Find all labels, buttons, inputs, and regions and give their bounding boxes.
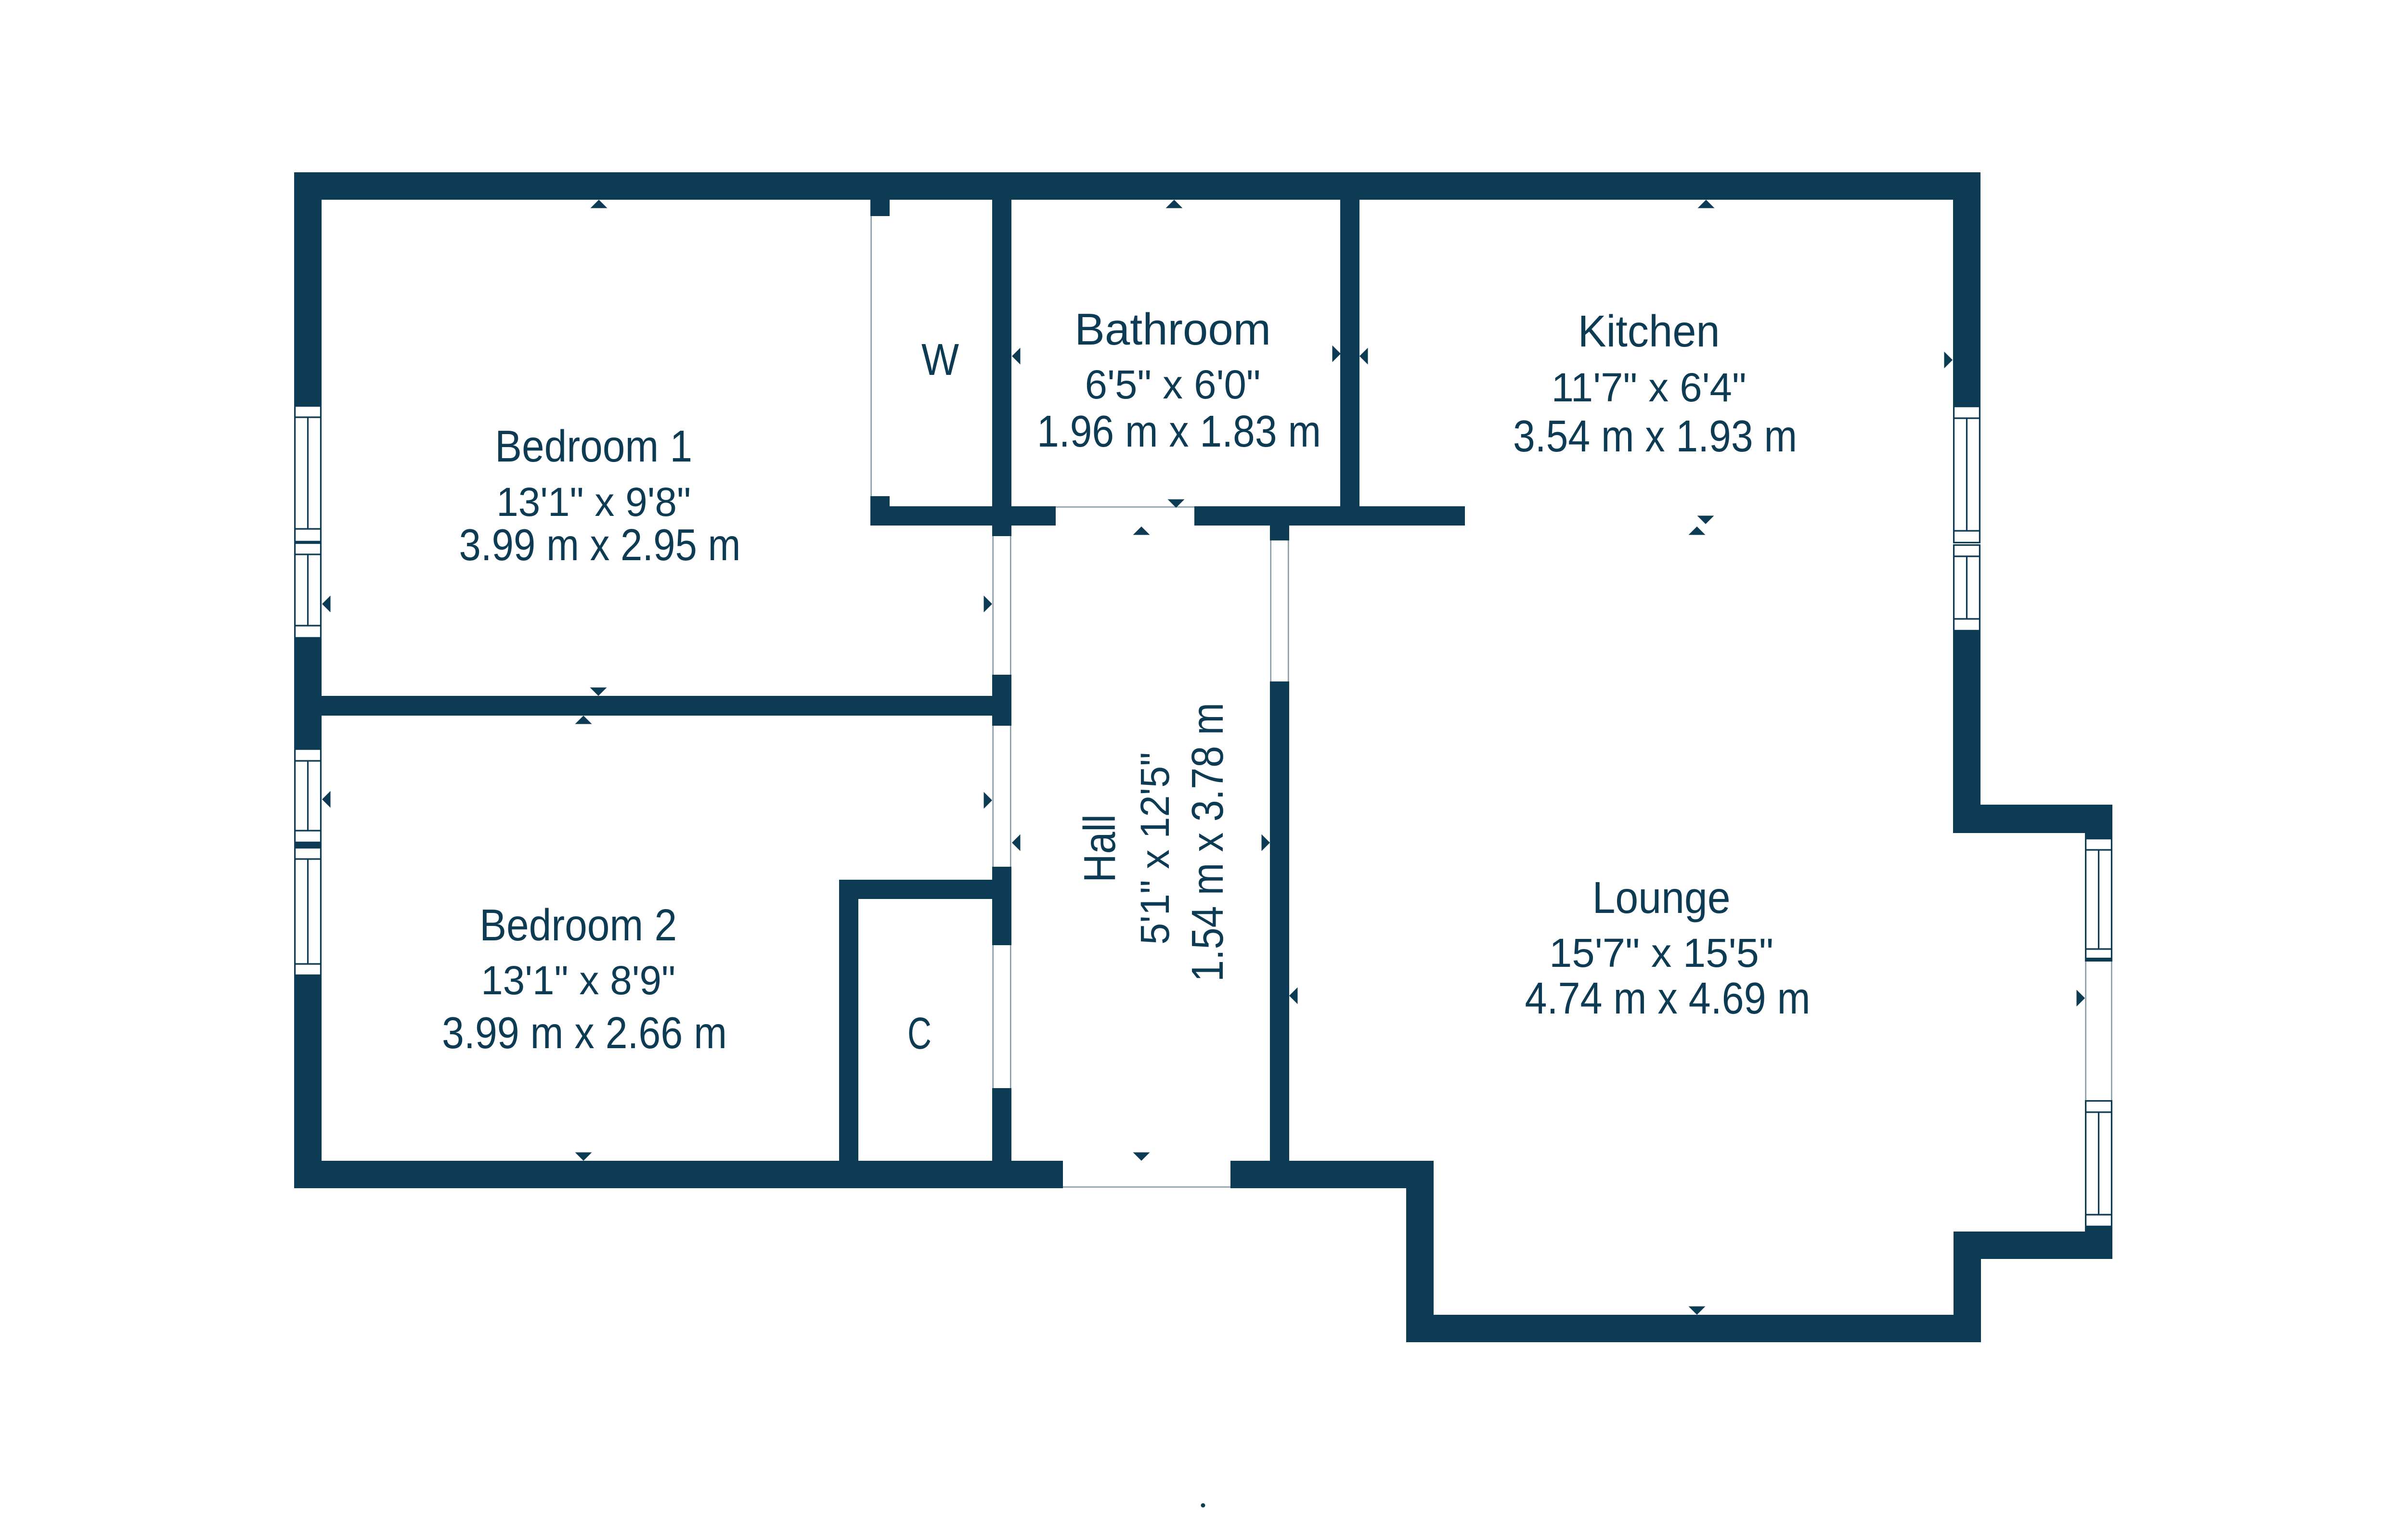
svg-text:W: W [921, 334, 959, 385]
svg-text:Bedroom 2 13'1" x 8'9" 3.99 m: Bedroom 2 13'1" x 8'9" 3.99 m x 2.66 m [442, 900, 727, 1058]
svg-text:C: C [907, 1008, 932, 1058]
svg-text:Bedroom 1 13'1" x 9'8" 3.99 m: Bedroom 1 13'1" x 9'8" 3.99 m x 2.95 m [459, 421, 741, 570]
